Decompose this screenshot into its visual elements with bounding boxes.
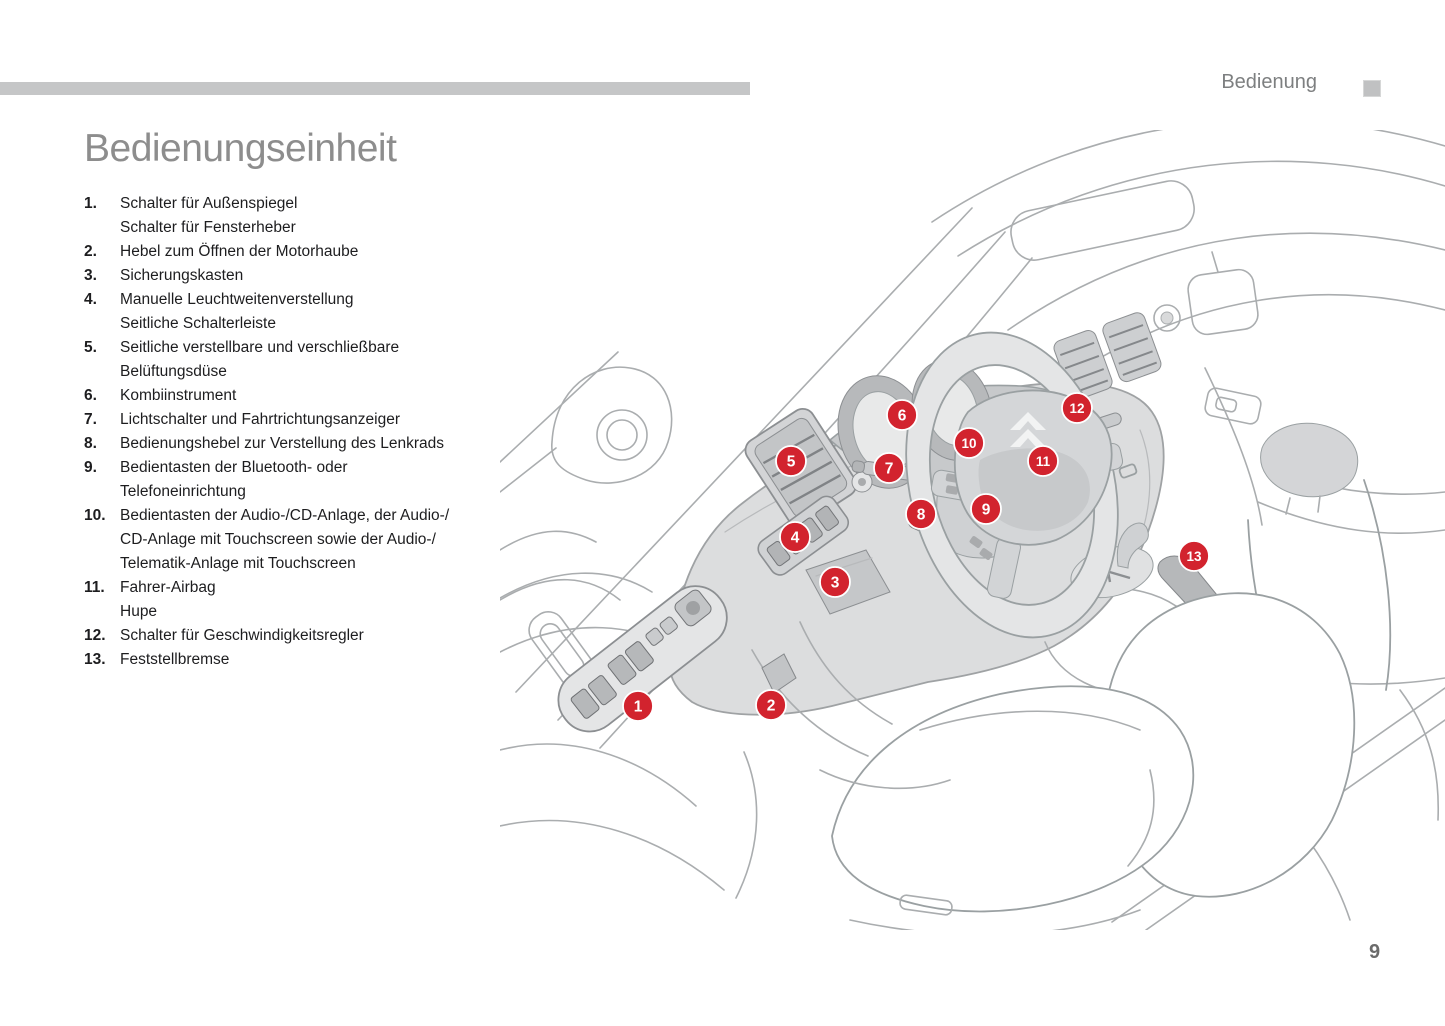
legend-item-text: Bedienungshebel zur Verstellung des Lenk… [120,432,444,456]
legend-item-text: Seitliche verstellbare und verschließbar… [120,336,399,384]
door-panel [500,573,757,898]
legend-item-12: 12.Schalter für Geschwindigkeitsregler [84,624,504,648]
legend-item-10: 10.Bedientasten der Audio-/CD-Anlage, de… [84,504,504,576]
section-label: Bedienung [1221,71,1317,94]
legend-item-text: Bedientasten der Bluetooth- oderTelefone… [120,456,348,504]
svg-text:8: 8 [917,507,926,524]
legend-item-number: 10. [84,504,120,576]
legend-item-number: 3. [84,264,120,288]
legend-item-1: 1.Schalter für AußenspiegelSchalter für … [84,192,504,240]
diagram-marker-6: 6 [887,400,917,430]
legend-item-text: Kombiinstrument [120,384,236,408]
parts-legend: 1.Schalter für AußenspiegelSchalter für … [84,192,504,672]
svg-text:12: 12 [1069,401,1084,416]
legend-item-text: Manuelle LeuchtweitenverstellungSeitlich… [120,288,354,336]
tweeter-speaker [1154,305,1180,331]
legend-item-8: 8.Bedienungshebel zur Verstellung des Le… [84,432,504,456]
legend-item-number: 9. [84,456,120,504]
legend-item-number: 8. [84,432,120,456]
legend-item-3: 3.Sicherungskasten [84,264,504,288]
diagram-marker-1: 1 [623,691,653,721]
legend-item-text: Bedientasten der Audio-/CD-Anlage, der A… [120,504,449,576]
manual-page: { "header": { "section_label": "Bedienun… [0,0,1445,1026]
page-number: 9 [1369,941,1380,964]
legend-item-number: 6. [84,384,120,408]
left-door-mirror-area [500,352,672,600]
diagram-marker-11: 11 [1028,446,1058,476]
diagram-marker-4: 4 [780,522,810,552]
svg-text:1: 1 [634,699,643,716]
section-index-square [1363,80,1381,97]
diagram-marker-5: 5 [776,446,806,476]
header-rule-bar [0,82,750,95]
legend-item-5: 5.Seitliche verstellbare und verschließb… [84,336,504,384]
diagram-marker-7: 7 [874,453,904,483]
page-title: Bedienungseinheit [84,127,396,171]
diagram-marker-2: 2 [756,690,786,720]
svg-text:7: 7 [885,461,894,478]
legend-item-13: 13.Feststellbremse [84,648,504,672]
legend-item-number: 11. [84,576,120,624]
diagram-marker-12: 12 [1062,393,1092,423]
sun-visor [1007,177,1198,264]
diagram-marker-13: 13 [1179,541,1209,571]
legend-item-number: 1. [84,192,120,240]
diagram-marker-3: 3 [820,567,850,597]
interior-diagram: 12345678910111213 [500,130,1445,930]
svg-text:3: 3 [831,575,840,592]
diagram-marker-9: 9 [971,494,1001,524]
legend-item-number: 12. [84,624,120,648]
legend-item-6: 6.Kombiinstrument [84,384,504,408]
legend-item-number: 5. [84,336,120,384]
legend-item-text: Schalter für AußenspiegelSchalter für Fe… [120,192,298,240]
svg-text:2: 2 [767,698,776,715]
legend-item-4: 4.Manuelle LeuchtweitenverstellungSeitli… [84,288,504,336]
svg-text:5: 5 [787,454,796,471]
rearview-mirror [1186,252,1260,336]
legend-item-text: Fahrer-AirbagHupe [120,576,216,624]
svg-text:13: 13 [1186,549,1202,564]
legend-item-text: Schalter für Geschwindigkeitsregler [120,624,364,648]
diagram-marker-10: 10 [954,428,984,458]
legend-item-number: 4. [84,288,120,336]
legend-item-number: 7. [84,408,120,432]
svg-text:4: 4 [791,530,800,547]
legend-item-text: Hebel zum Öffnen der Motorhaube [120,240,358,264]
legend-item-7: 7.Lichtschalter und Fahrtrichtungsanzeig… [84,408,504,432]
legend-item-11: 11.Fahrer-AirbagHupe [84,576,504,624]
legend-item-text: Feststellbremse [120,648,229,672]
legend-item-9: 9.Bedientasten der Bluetooth- oderTelefo… [84,456,504,504]
legend-item-number: 2. [84,240,120,264]
diagram-marker-8: 8 [906,499,936,529]
legend-item-text: Lichtschalter und Fahrtrichtungsanzeiger [120,408,400,432]
svg-text:9: 9 [982,502,991,519]
legend-item-2: 2.Hebel zum Öffnen der Motorhaube [84,240,504,264]
svg-text:11: 11 [1036,454,1051,469]
svg-text:6: 6 [898,408,907,425]
legend-item-number: 13. [84,648,120,672]
svg-text:10: 10 [961,436,976,451]
legend-item-text: Sicherungskasten [120,264,243,288]
